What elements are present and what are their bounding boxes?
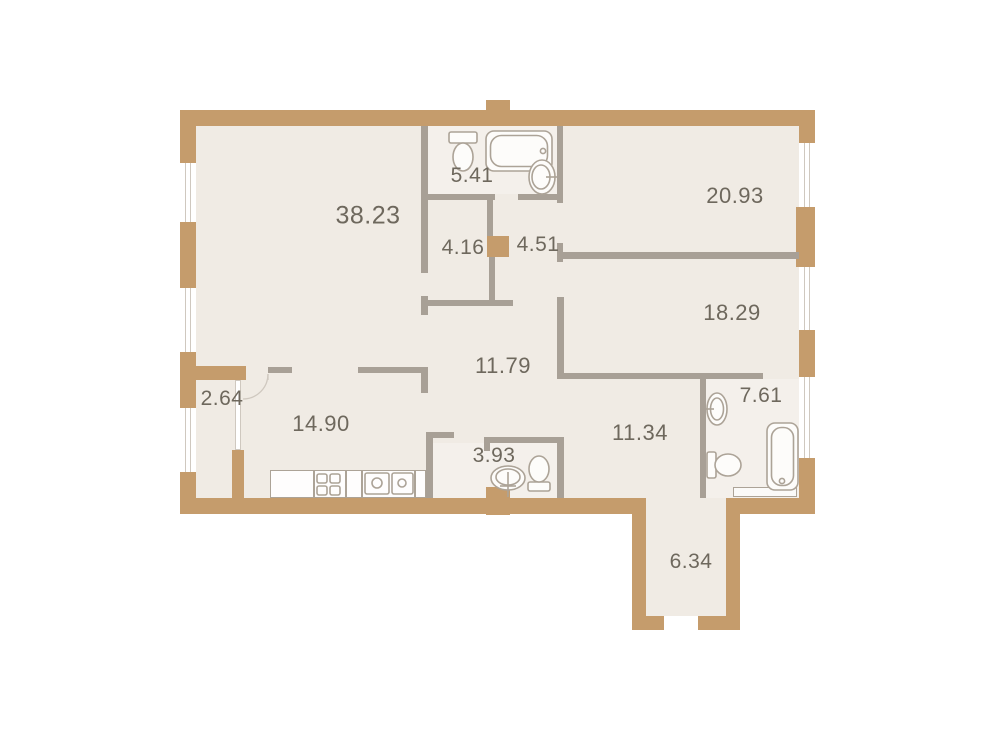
sink-icon [706, 393, 727, 425]
kitchen-sink-icon [365, 473, 413, 494]
room-label-hallway: 11.79 [475, 353, 531, 379]
sink-icon [529, 160, 557, 194]
floor-plan: 38.235.4120.934.164.5118.2911.792.6414.9… [0, 0, 1000, 750]
bathtub-icon [767, 423, 798, 490]
toilet-icon [528, 456, 550, 491]
room-label-entrance-hall: 6.34 [670, 550, 713, 574]
door-swing-arc [243, 374, 268, 399]
sink-icon [491, 466, 525, 497]
room-label-room-bottom-right: 11.34 [612, 420, 668, 446]
room-label-bathroom-top: 5.41 [451, 164, 494, 188]
stove-icon [317, 474, 340, 495]
toilet-icon [707, 452, 741, 478]
room-label-bedroom-right: 18.29 [703, 300, 761, 326]
room-label-bathroom-bottom: 3.93 [473, 444, 516, 468]
room-label-bathroom-ensuite: 7.61 [740, 384, 783, 408]
room-label-living-room: 38.23 [335, 202, 400, 231]
room-label-kitchen: 14.90 [292, 411, 350, 437]
room-label-bedroom-top-right: 20.93 [706, 183, 764, 209]
room-label-wardrobe: 4.16 [442, 236, 485, 260]
room-label-hall-upper: 4.51 [517, 233, 560, 257]
room-label-balcony: 2.64 [201, 387, 244, 411]
